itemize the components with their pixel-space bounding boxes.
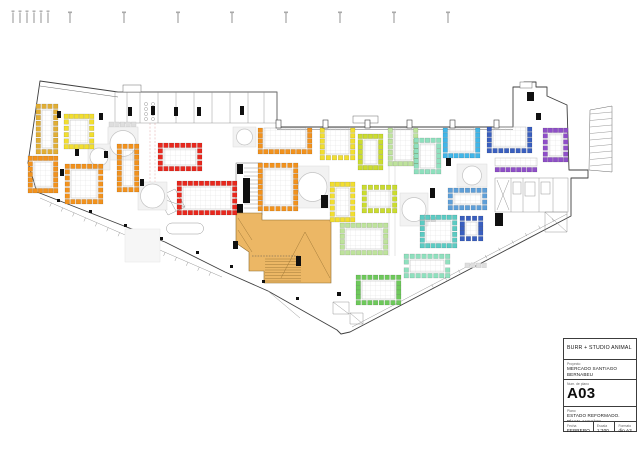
stall-yellow [350, 217, 355, 222]
stall-gold [53, 104, 58, 109]
stall-orange [307, 139, 312, 144]
stall-palegreen [345, 250, 350, 255]
stall-red [197, 143, 202, 148]
stall-purple [563, 157, 568, 162]
stall-yellow [350, 144, 355, 149]
stall-orange [296, 149, 301, 154]
stair-wall [237, 164, 243, 174]
grid-tick-label [446, 12, 450, 14]
stall-red [197, 166, 202, 171]
stall-yellow [84, 144, 89, 149]
stall-orange [28, 178, 33, 183]
stall-green [385, 300, 390, 305]
stall-orange [117, 171, 122, 176]
stall-grid-red [183, 187, 231, 209]
stall-teal [425, 215, 430, 220]
stall-orange [65, 164, 70, 169]
stall-gold [53, 149, 58, 154]
stall-yellow [330, 217, 335, 222]
stall-red [197, 149, 202, 154]
stall-red [158, 155, 163, 160]
stall-yellow [64, 144, 69, 149]
stall-orange [258, 139, 263, 144]
column-mark [527, 92, 534, 101]
stall-green [391, 275, 396, 280]
gray-stall [465, 263, 470, 268]
column-mark [128, 107, 132, 116]
stall-mint [436, 169, 441, 174]
edge-tick [209, 272, 211, 276]
stall-gold [53, 127, 58, 132]
stall-gold [36, 104, 41, 109]
stall-palegreen [388, 145, 393, 150]
stall-green [368, 275, 373, 280]
stall-green [396, 295, 401, 300]
stall-red [232, 181, 237, 186]
stall-yellow [320, 133, 325, 138]
stall-gold [48, 149, 53, 154]
stall-blue [499, 148, 504, 153]
stall-red [199, 181, 204, 186]
stall-orange [276, 163, 281, 168]
stall-green [396, 300, 401, 305]
note-tab [520, 82, 532, 88]
stall-chartreuse [368, 134, 373, 139]
stall-orange [71, 164, 76, 169]
stall-mint [414, 159, 419, 164]
grid-tick-label [284, 12, 288, 14]
stall-palegreen [413, 134, 418, 139]
column-mark [99, 113, 103, 120]
stall-palegreen [388, 161, 393, 166]
stall-orange [293, 169, 298, 174]
stall-grid-orange [123, 150, 133, 186]
stall-chartreuse [358, 155, 363, 160]
stall-chartreuse [392, 203, 397, 208]
floor-plan-canvas [0, 0, 640, 453]
grid-tick-label [68, 12, 72, 14]
column-mark [140, 179, 144, 186]
stall-orange [285, 149, 290, 154]
stall-red [197, 155, 202, 160]
stall-palegreen [383, 245, 388, 250]
stall-yellow [64, 139, 69, 144]
stall-purple [563, 128, 568, 133]
column-mark [151, 106, 155, 115]
stall-yellow [330, 200, 335, 205]
stall-yellow [344, 155, 349, 160]
stall-gold [53, 132, 58, 137]
stall-cyan [475, 148, 480, 153]
band-fixture [144, 102, 147, 105]
stall-orange [65, 188, 70, 193]
column-mark [174, 107, 178, 116]
column-mark [430, 188, 435, 198]
stall-red [158, 166, 163, 171]
gray-stall [115, 122, 120, 127]
column-mark [296, 256, 301, 266]
stall-grid-orange [71, 170, 97, 198]
stall-gold [36, 132, 41, 137]
stall-chartreuse [363, 165, 368, 170]
stall-orange [48, 156, 53, 161]
stall-yellow [350, 139, 355, 144]
stall-orange [53, 172, 58, 177]
column-mark [536, 113, 541, 120]
column-mark [495, 213, 503, 226]
stall-purple [563, 146, 568, 151]
stall-cyan [443, 138, 448, 143]
stall-yellow [350, 212, 355, 217]
stall-mint [404, 260, 409, 265]
stall-yellow [350, 194, 355, 199]
stall-orange [76, 164, 81, 169]
stall-orange [293, 179, 298, 184]
stall-orange [134, 155, 139, 160]
stall-grid-cyan [449, 128, 474, 152]
stall-yellow [69, 144, 74, 149]
stall-palegreen [373, 250, 378, 255]
stall-orange [129, 187, 134, 192]
scale-cell: Escala 1:300 [594, 422, 616, 432]
stall-mint [404, 273, 409, 278]
stall-chartreuse [378, 134, 383, 139]
scale-label [47, 11, 50, 12]
stall-red [186, 166, 191, 171]
column-mark [197, 107, 201, 116]
stall-chartreuse [378, 145, 383, 150]
stall-orange [134, 176, 139, 181]
stall-orange [263, 149, 268, 154]
stall-gold [36, 115, 41, 120]
stall-chartreuse [386, 208, 391, 213]
title-block: BURR + STUDIO ANIMAL Proyecto MERCADO SA… [563, 338, 637, 432]
facade-door-mark [323, 120, 328, 128]
stall-yellow [338, 155, 343, 160]
scale-label [19, 11, 22, 12]
stall-blue [466, 236, 471, 241]
floor-zone [125, 229, 160, 262]
stall-green [396, 290, 401, 295]
stall-teal [452, 226, 457, 231]
stall-teal [431, 215, 436, 220]
note-tab [123, 85, 141, 92]
format-value: din A3 [618, 428, 633, 432]
stall-red [192, 143, 197, 148]
stall-red [232, 210, 237, 215]
grid-tick-label [338, 12, 342, 14]
stall-orange [98, 194, 103, 199]
stall-orange [258, 190, 263, 195]
stall-orange [307, 144, 312, 149]
stall-palegreen [378, 223, 383, 228]
stall-palegreen [383, 239, 388, 244]
stall-red [192, 166, 197, 171]
stall-cyan [470, 153, 475, 158]
stall-blue [478, 226, 483, 231]
stall-mint [436, 138, 441, 143]
scale-label [33, 11, 36, 12]
stall-red [177, 199, 182, 204]
stall-palegreen [356, 223, 361, 228]
stall-mint [410, 254, 415, 259]
stall-lightblue [477, 205, 482, 210]
stall-lightblue [454, 188, 459, 193]
stall-gold [53, 121, 58, 126]
stall-mint [439, 254, 444, 259]
stall-blue [466, 216, 471, 221]
stall-purple [558, 157, 563, 162]
stall-yellow [89, 120, 94, 125]
stall-chartreuse [392, 208, 397, 213]
stall-teal [436, 215, 441, 220]
stall-yellow [350, 200, 355, 205]
band-fixture [151, 117, 154, 120]
stall-chartreuse [358, 150, 363, 155]
stall-palegreen [367, 223, 372, 228]
column-mark [57, 199, 60, 202]
stall-orange [53, 183, 58, 188]
stall-red [227, 181, 232, 186]
stall-purple [548, 128, 553, 133]
stall-lightblue [471, 188, 476, 193]
stall-orange [134, 166, 139, 171]
stall-chartreuse [380, 185, 385, 190]
stall-orange [87, 164, 92, 169]
stall-chartreuse [362, 203, 367, 208]
stall-purple [563, 140, 568, 145]
stall-orange [134, 182, 139, 187]
stall-orange [98, 176, 103, 181]
edge-tick [118, 233, 120, 237]
stall-cyan [454, 153, 459, 158]
external-stair-step [590, 151, 612, 153]
stall-orange [258, 195, 263, 200]
stall-orange [282, 163, 287, 168]
round-table [463, 166, 482, 185]
stall-red [221, 181, 226, 186]
stall-orange [117, 155, 122, 160]
rooms-right [495, 178, 568, 212]
stall-palegreen [362, 250, 367, 255]
stall-chartreuse [378, 155, 383, 160]
edge-tick [107, 228, 109, 232]
stall-orange [98, 188, 103, 193]
stall-cyan [465, 153, 470, 158]
gray-stall [482, 263, 487, 268]
stall-red [164, 166, 169, 171]
stall-orange [38, 188, 43, 193]
scale-label [26, 11, 29, 12]
stall-blue [487, 132, 492, 137]
stall-mint [431, 138, 436, 143]
stall-red [177, 193, 182, 198]
stall-purple [495, 167, 500, 172]
stall-mint [445, 273, 450, 278]
band-fixture [144, 112, 147, 115]
stall-gold [53, 138, 58, 143]
stall-orange [33, 156, 38, 161]
stall-orange [293, 185, 298, 190]
stall-purple [532, 167, 537, 172]
stall-purple [543, 146, 548, 151]
stall-orange [98, 182, 103, 187]
stall-orange [274, 149, 279, 154]
stall-orange [28, 172, 33, 177]
stall-red [177, 187, 182, 192]
stall-orange [53, 167, 58, 172]
stall-orange [293, 163, 298, 168]
stall-orange [38, 156, 43, 161]
plan-linework [545, 212, 567, 232]
stall-purple [563, 134, 568, 139]
edge-tick [95, 223, 97, 227]
stall-red [232, 193, 237, 198]
stall-orange [93, 164, 98, 169]
stall-cyan [448, 153, 453, 158]
stall-orange [288, 206, 293, 211]
stall-green [362, 275, 367, 280]
stall-grid-chartreuse [364, 140, 377, 164]
stall-orange [98, 199, 103, 204]
stall-purple [548, 157, 553, 162]
stall-blue [527, 138, 532, 143]
stall-red [197, 161, 202, 166]
column-mark [124, 224, 127, 227]
stall-purple [516, 167, 521, 172]
stall-red [216, 210, 221, 215]
stall-palegreen [403, 161, 408, 166]
stall-grid-purple [495, 158, 537, 166]
stall-yellow [89, 132, 94, 137]
stall-teal [420, 221, 425, 226]
stall-palegreen [388, 134, 393, 139]
stall-lightblue [482, 200, 487, 205]
stall-yellow [64, 114, 69, 119]
stall-palegreen [398, 161, 403, 166]
stall-blue [478, 222, 483, 227]
stall-orange [43, 188, 48, 193]
stall-green [356, 285, 361, 290]
external-stair-step [590, 132, 612, 134]
column-mark [160, 237, 163, 240]
stall-orange [258, 174, 263, 179]
stall-red [188, 210, 193, 215]
stall-lightblue [471, 205, 476, 210]
stall-orange [87, 199, 92, 204]
facade-door-mark [276, 120, 281, 128]
stall-orange [291, 149, 296, 154]
stall-mint [422, 273, 427, 278]
stall-teal [420, 238, 425, 243]
stall-grid-orange [264, 169, 292, 205]
grid-tick-label [122, 12, 126, 14]
stall-mint [420, 169, 425, 174]
stall-green [356, 281, 361, 286]
stall-teal [452, 238, 457, 243]
edge-tick [61, 208, 63, 212]
stall-orange [65, 199, 70, 204]
stall-chartreuse [374, 185, 379, 190]
edge-tick [186, 262, 188, 266]
stall-red [158, 149, 163, 154]
stall-red [194, 181, 199, 186]
stall-yellow [335, 182, 340, 187]
stall-orange [28, 162, 33, 167]
stall-orange [129, 144, 134, 149]
stall-orange [65, 194, 70, 199]
stall-palegreen [340, 229, 345, 234]
stall-yellow [79, 144, 84, 149]
stall-mint [404, 254, 409, 259]
stall-yellow [79, 114, 84, 119]
stall-yellow [335, 217, 340, 222]
stall-red [158, 161, 163, 166]
stall-teal [420, 243, 425, 248]
stall-orange [117, 160, 122, 165]
stall-orange [302, 149, 307, 154]
stall-orange [258, 128, 263, 133]
stall-teal [436, 243, 441, 248]
stall-orange [258, 149, 263, 154]
stall-orange [76, 199, 81, 204]
column-mark [262, 280, 265, 283]
stall-palegreen [340, 245, 345, 250]
stall-red [188, 181, 193, 186]
stall-orange [53, 162, 58, 167]
grid-tick-label [230, 12, 234, 14]
stall-mint [410, 273, 415, 278]
facade-door-mark [407, 120, 412, 128]
stall-gold [36, 138, 41, 143]
scale-value: 1:300 [597, 428, 612, 432]
stall-mint [414, 144, 419, 149]
stall-yellow [350, 182, 355, 187]
stall-grid-blue [466, 222, 477, 235]
stall-teal [447, 215, 452, 220]
stall-mint [414, 164, 419, 169]
stall-green [396, 275, 401, 280]
stall-orange [307, 133, 312, 138]
stall-lightblue [482, 194, 487, 199]
stall-orange [33, 188, 38, 193]
stall-purple [527, 167, 532, 172]
stall-yellow [330, 212, 335, 217]
stall-purple [563, 152, 568, 157]
stall-yellow [350, 128, 355, 133]
stall-palegreen [383, 223, 388, 228]
stall-green [368, 300, 373, 305]
gray-stall [109, 122, 114, 127]
stall-lightblue [465, 188, 470, 193]
stall-grid-lightblue [454, 194, 481, 204]
stall-palegreen [340, 223, 345, 228]
stall-orange [134, 150, 139, 155]
column-mark [321, 195, 328, 208]
column-mark [104, 151, 108, 158]
stall-red [221, 210, 226, 215]
drawing-sheet: BURR + STUDIO ANIMAL Proyecto MERCADO SA… [0, 0, 640, 453]
title-block-project-row: Proyecto MERCADO SANTIAGO BERNABEU [564, 360, 636, 380]
stall-green [379, 275, 384, 280]
stall-chartreuse [386, 185, 391, 190]
stall-blue [460, 231, 465, 236]
stall-orange [276, 206, 281, 211]
stall-yellow [340, 217, 345, 222]
stall-blue [510, 148, 515, 153]
stall-cyan [443, 133, 448, 138]
gray-stall [131, 122, 136, 127]
